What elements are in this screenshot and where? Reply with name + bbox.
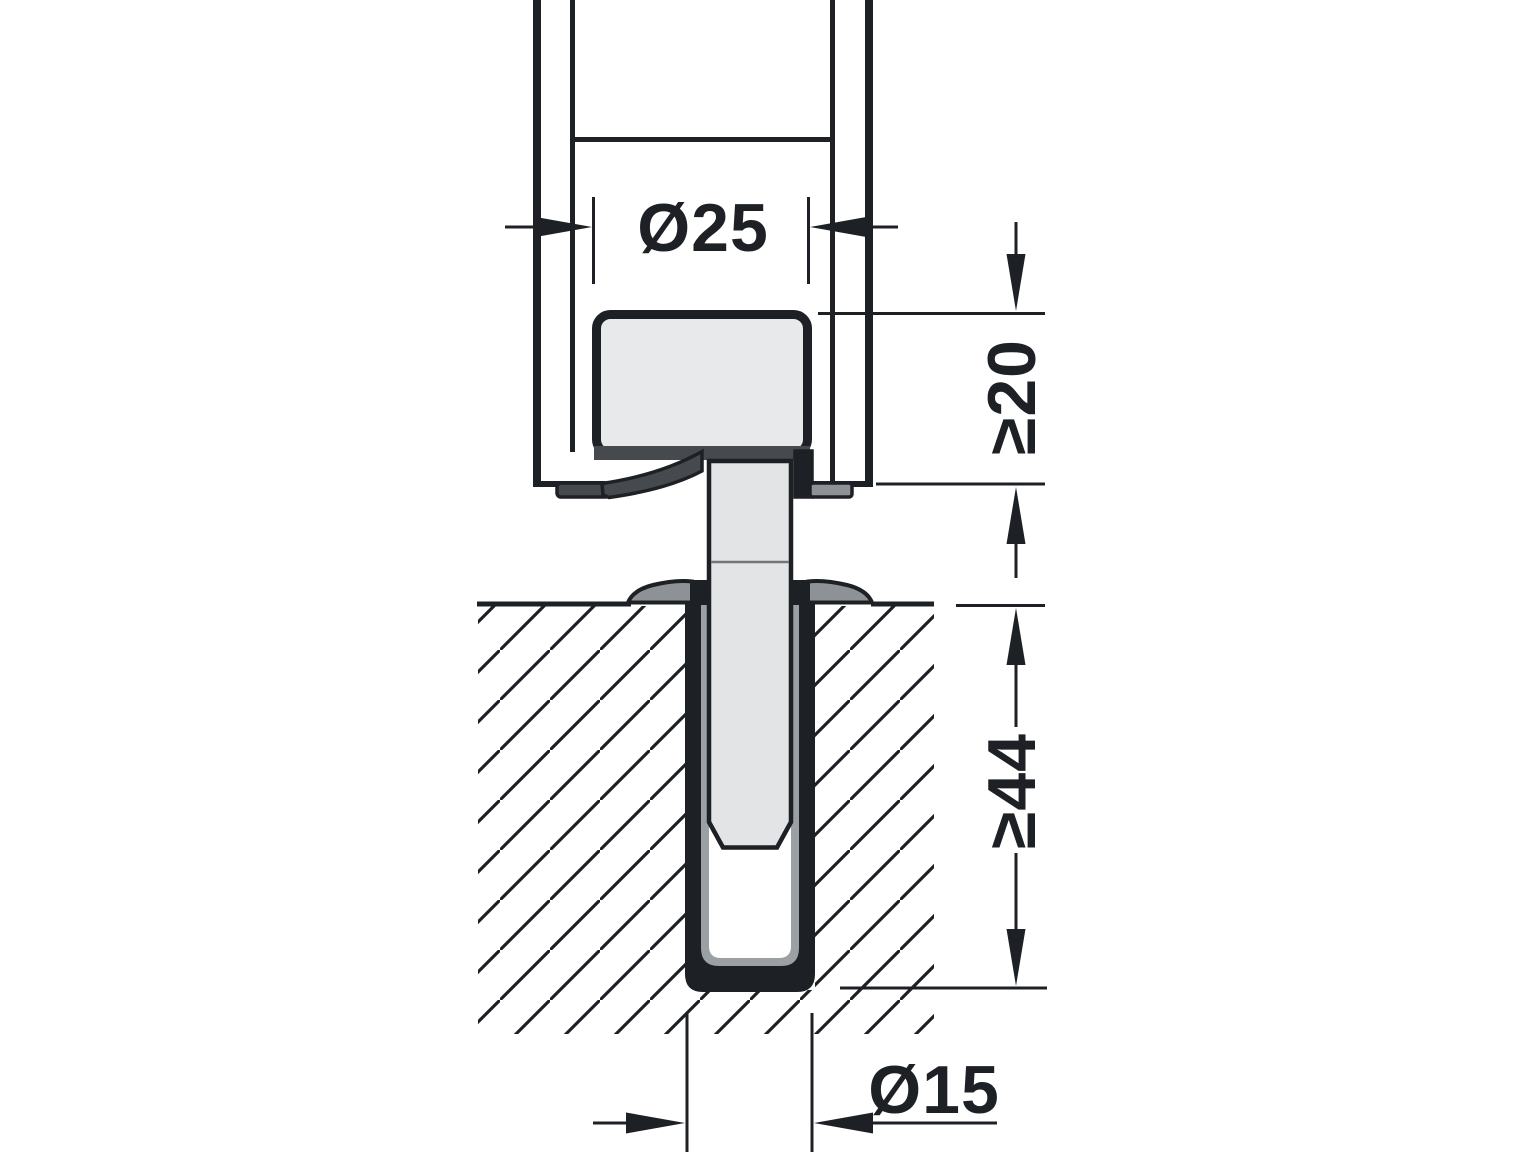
socket-flange-left bbox=[628, 581, 692, 603]
socket-collar-right bbox=[793, 580, 807, 605]
arrow-right-icon bbox=[626, 1113, 685, 1134]
technical-drawing: Ø25 ≥20 bbox=[0, 0, 1536, 1152]
drawing-canvas: Ø25 ≥20 bbox=[0, 0, 1536, 1152]
dimension-label-min20: ≥20 bbox=[974, 339, 1050, 455]
arrow-right-icon bbox=[533, 217, 592, 238]
rod-body bbox=[709, 461, 791, 848]
arrow-down-icon bbox=[1007, 254, 1026, 311]
arrow-up-icon bbox=[1007, 608, 1026, 665]
dimension-label-dia15: Ø15 bbox=[868, 1052, 1000, 1128]
arrow-down-icon bbox=[1007, 929, 1026, 986]
dimension-dia25: Ø25 bbox=[505, 190, 898, 284]
dimension-min20: ≥20 bbox=[818, 222, 1050, 578]
door-inner-web-line bbox=[570, 137, 835, 142]
socket-flange-right bbox=[808, 581, 872, 603]
dimension-label-dia25: Ø25 bbox=[637, 190, 769, 266]
latch-housing bbox=[597, 315, 808, 454]
door-wall-right-inner bbox=[830, 0, 835, 483]
locking-rod bbox=[709, 461, 791, 848]
dimension-label-min44: ≥44 bbox=[974, 733, 1050, 849]
arrow-up-icon bbox=[1007, 487, 1026, 544]
guide-plate-foot-right bbox=[810, 483, 852, 497]
door-wall-left-outer bbox=[533, 0, 541, 487]
door-wall-right-outer bbox=[865, 0, 873, 487]
arrow-left-icon bbox=[814, 1113, 873, 1134]
socket-collar-left bbox=[693, 580, 707, 605]
